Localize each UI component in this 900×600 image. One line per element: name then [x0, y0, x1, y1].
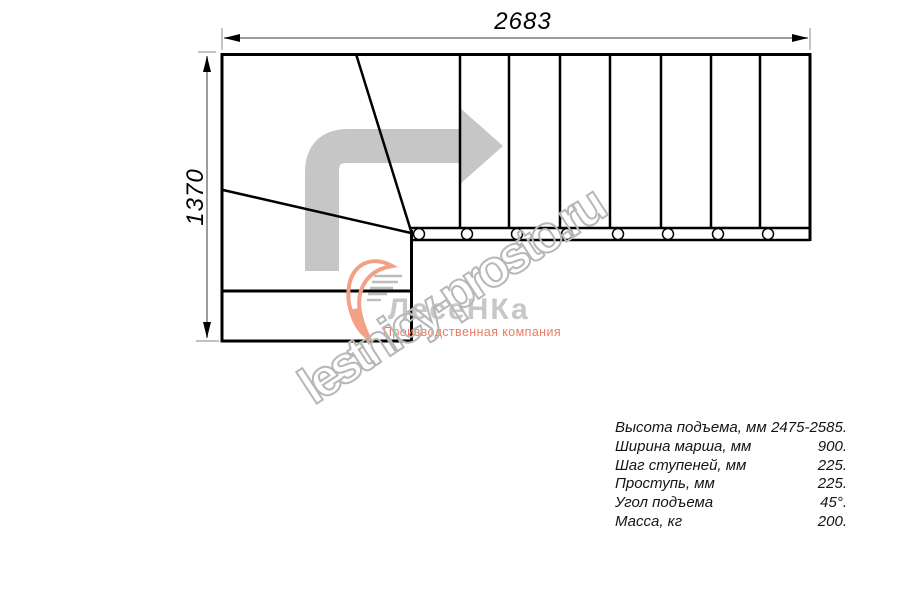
spec-value: 225.: [818, 475, 847, 494]
spec-value: 45°.: [820, 494, 847, 513]
stair-plan-page: 2683 1370 ЛесеНКа Производственная компа…: [0, 0, 900, 600]
baluster-circle: [713, 229, 724, 240]
spec-value: 225.: [818, 457, 847, 476]
spec-label: Проступь, мм: [615, 475, 715, 494]
direction-arrow-head: [459, 107, 503, 185]
spec-row: Ширина марша, мм900.: [615, 438, 847, 457]
dim-arrow-top: [203, 56, 211, 72]
baluster-circle: [414, 229, 425, 240]
spec-value: 200.: [818, 513, 847, 532]
spec-label: Масса, кг: [615, 513, 682, 532]
spec-row: Проступь, мм225.: [615, 475, 847, 494]
spec-label: Шаг ступеней, мм: [615, 457, 746, 476]
spec-label: Угол подъема: [615, 494, 713, 513]
spec-row: Масса, кг200.: [615, 513, 847, 532]
spec-value: 900.: [818, 438, 847, 457]
baluster-circle: [763, 229, 774, 240]
spec-label: Высота подъема, мм: [615, 419, 767, 438]
specs-table: Высота подъема, мм2475-2585.Ширина марша…: [615, 419, 847, 532]
height-dimension-value: 1370: [182, 157, 210, 237]
spec-value: 2475-2585.: [771, 419, 847, 438]
spec-row: Высота подъема, мм2475-2585.: [615, 419, 847, 438]
baluster-circle: [663, 229, 674, 240]
dim-arrow-left: [224, 34, 240, 42]
dim-arrow-bottom: [203, 322, 211, 338]
baluster-circle: [462, 229, 473, 240]
spec-label: Ширина марша, мм: [615, 438, 751, 457]
dim-arrow-right: [792, 34, 808, 42]
spec-row: Шаг ступеней, мм225.: [615, 457, 847, 476]
width-dimension-value: 2683: [483, 8, 563, 36]
spec-row: Угол подъема45°.: [615, 494, 847, 513]
